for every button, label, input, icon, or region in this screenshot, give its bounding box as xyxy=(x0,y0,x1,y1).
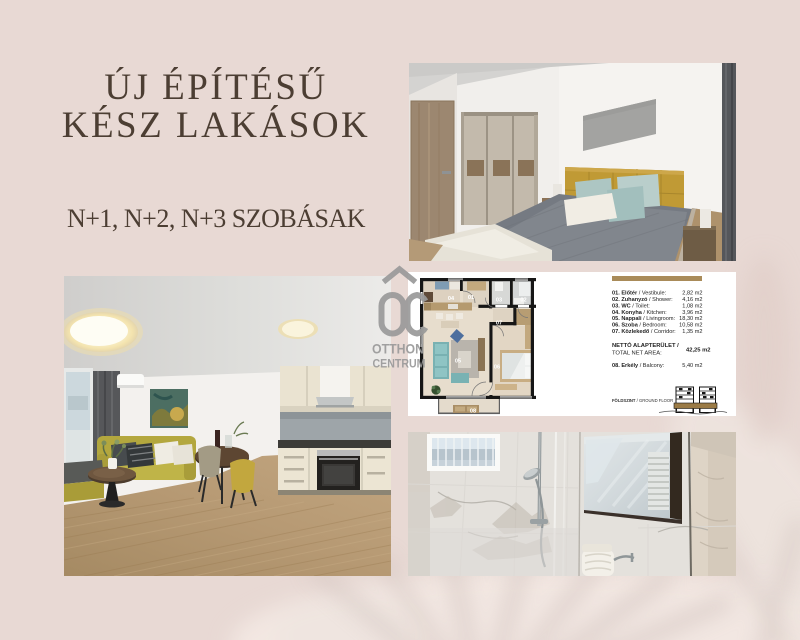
svg-text:07: 07 xyxy=(496,321,502,327)
svg-text:06: 06 xyxy=(494,365,500,371)
svg-text:CENTRUM: CENTRUM xyxy=(373,357,426,371)
svg-text:FÖLDSZINT / GROUND FLOOR: FÖLDSZINT / GROUND FLOOR xyxy=(612,398,673,403)
svg-text:04. Konyha / Kitchen:: 04. Konyha / Kitchen: xyxy=(612,310,667,316)
svg-text:TOTAL NET AREA:: TOTAL NET AREA: xyxy=(612,351,662,357)
svg-text:05: 05 xyxy=(455,359,461,365)
svg-text:02: 02 xyxy=(520,298,526,304)
svg-text:4,16 m2: 4,16 m2 xyxy=(682,297,702,303)
svg-text:3,96 m2: 3,96 m2 xyxy=(682,310,702,316)
svg-text:42,25 m2: 42,25 m2 xyxy=(686,348,711,354)
svg-text:04: 04 xyxy=(448,296,455,302)
svg-text:01. Előtér / Vestibule:: 01. Előtér / Vestibule: xyxy=(612,291,667,297)
svg-text:18,30 m2: 18,30 m2 xyxy=(679,316,702,322)
svg-text:5,40 m2: 5,40 m2 xyxy=(682,363,702,369)
svg-text:08: 08 xyxy=(470,409,476,415)
svg-text:OTTHON: OTTHON xyxy=(372,341,424,357)
svg-text:03: 03 xyxy=(496,298,502,304)
svg-text:06. Szoba / Bedroom:: 06. Szoba / Bedroom: xyxy=(612,323,667,329)
svg-text:1,08 m2: 1,08 m2 xyxy=(682,303,702,309)
svg-text:2,82 m2: 2,82 m2 xyxy=(682,291,702,297)
svg-text:02. Zuhanyzó / Shower:: 02. Zuhanyzó / Shower: xyxy=(612,297,673,303)
svg-text:08. Erkély / Balcony:: 08. Erkély / Balcony: xyxy=(612,363,665,369)
svg-text:05. Nappali / Livingroom:: 05. Nappali / Livingroom: xyxy=(612,316,676,322)
svg-text:1,35 m2: 1,35 m2 xyxy=(682,329,702,335)
svg-text:10,58 m2: 10,58 m2 xyxy=(679,323,702,329)
svg-text:NETTÓ ALAPTERÜLET /: NETTÓ ALAPTERÜLET / xyxy=(612,341,679,349)
svg-text:01: 01 xyxy=(468,295,474,301)
svg-text:03. WC / Toilet:: 03. WC / Toilet: xyxy=(612,303,650,309)
svg-text:07. Közlekedő / Corridor:: 07. Közlekedő / Corridor: xyxy=(612,329,676,335)
